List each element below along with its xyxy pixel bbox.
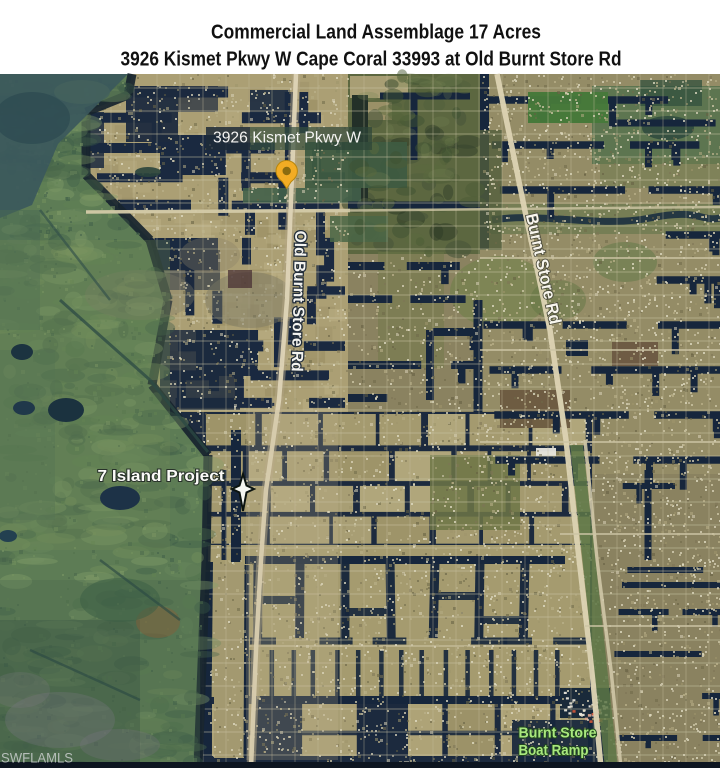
svg-text:Commercial Land Assemblage 17: Commercial Land Assemblage 17 Acres (211, 21, 541, 44)
svg-text:SWFLAMLS: SWFLAMLS (1, 751, 73, 766)
svg-text:3926 Kismet Pkwy W: 3926 Kismet Pkwy W (213, 130, 362, 147)
svg-text:Boat Ramp: Boat Ramp (519, 742, 589, 759)
svg-text:3926 Kismet Pkwy W Cape Coral: 3926 Kismet Pkwy W Cape Coral 33993 at O… (121, 48, 622, 71)
svg-text:7 Island Project: 7 Island Project (98, 468, 226, 485)
svg-text:Burnt Store: Burnt Store (519, 725, 597, 742)
